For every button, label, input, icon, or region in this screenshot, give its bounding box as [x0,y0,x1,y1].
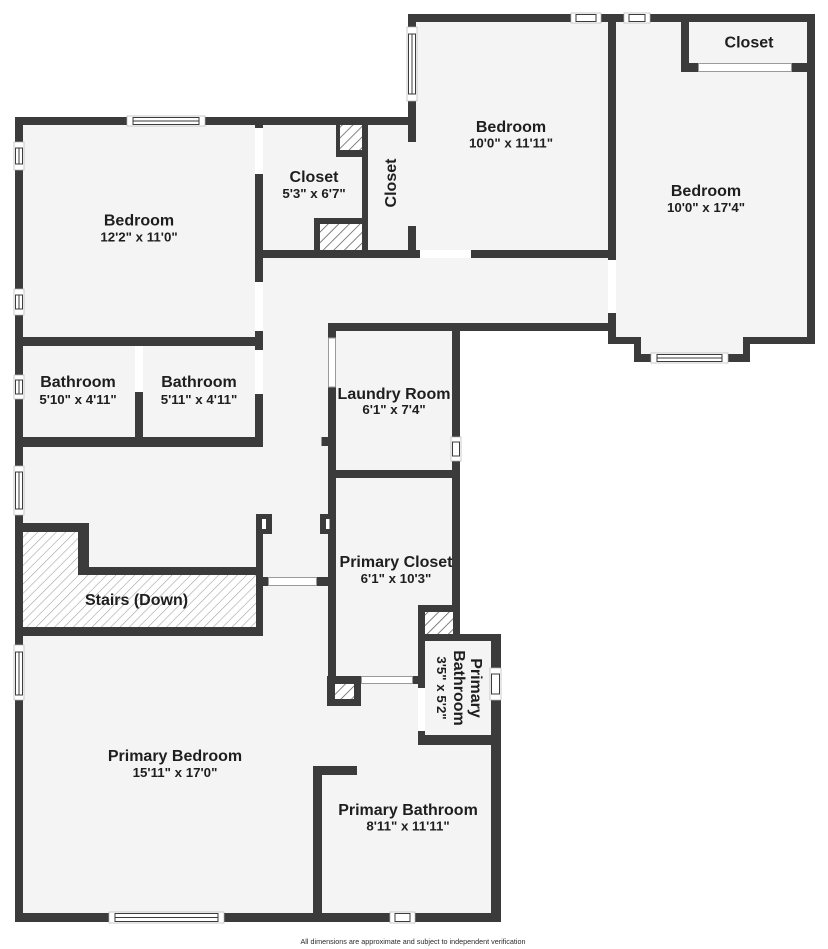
svg-text:Bedroom: Bedroom [476,119,546,136]
svg-text:5'11" x 4'11": 5'11" x 4'11" [161,392,238,407]
svg-text:8'11" x 11'11": 8'11" x 11'11" [366,819,449,834]
svg-text:10'0" x 11'11": 10'0" x 11'11" [469,136,553,151]
svg-text:15'11" x 17'0": 15'11" x 17'0" [133,765,218,780]
svg-text:Bedroom: Bedroom [671,183,741,200]
svg-text:Closet: Closet [725,35,775,52]
svg-text:Closet: Closet [290,169,340,186]
svg-text:Bathroom: Bathroom [161,374,237,391]
svg-text:5'10" x 4'11": 5'10" x 4'11" [39,392,116,407]
svg-text:Primary Closet: Primary Closet [340,554,454,571]
svg-text:6'1" x 7'4": 6'1" x 7'4" [362,402,425,417]
svg-text:Laundry Room: Laundry Room [338,386,451,403]
svg-text:3'5" x 5'2": 3'5" x 5'2" [434,656,449,719]
svg-text:6'1" x 10'3": 6'1" x 10'3" [361,571,432,586]
svg-text:Bathroom: Bathroom [40,374,116,391]
svg-text:Primary Bathroom: Primary Bathroom [338,802,478,819]
svg-text:Bedroom: Bedroom [104,213,174,230]
svg-text:Stairs (Down): Stairs (Down) [85,592,188,609]
svg-text:Primary: Primary [467,658,484,718]
svg-text:10'0" x 17'4": 10'0" x 17'4" [667,200,745,215]
svg-text:Primary Bedroom: Primary Bedroom [108,748,242,765]
svg-text:5'3" x 6'7": 5'3" x 6'7" [282,186,345,201]
svg-text:12'2" x 11'0": 12'2" x 11'0" [100,230,177,245]
svg-text:Closet: Closet [383,158,400,208]
svg-text:All dimensions are approximate: All dimensions are approximate and subje… [301,937,526,946]
svg-text:Bathroom: Bathroom [450,650,467,726]
